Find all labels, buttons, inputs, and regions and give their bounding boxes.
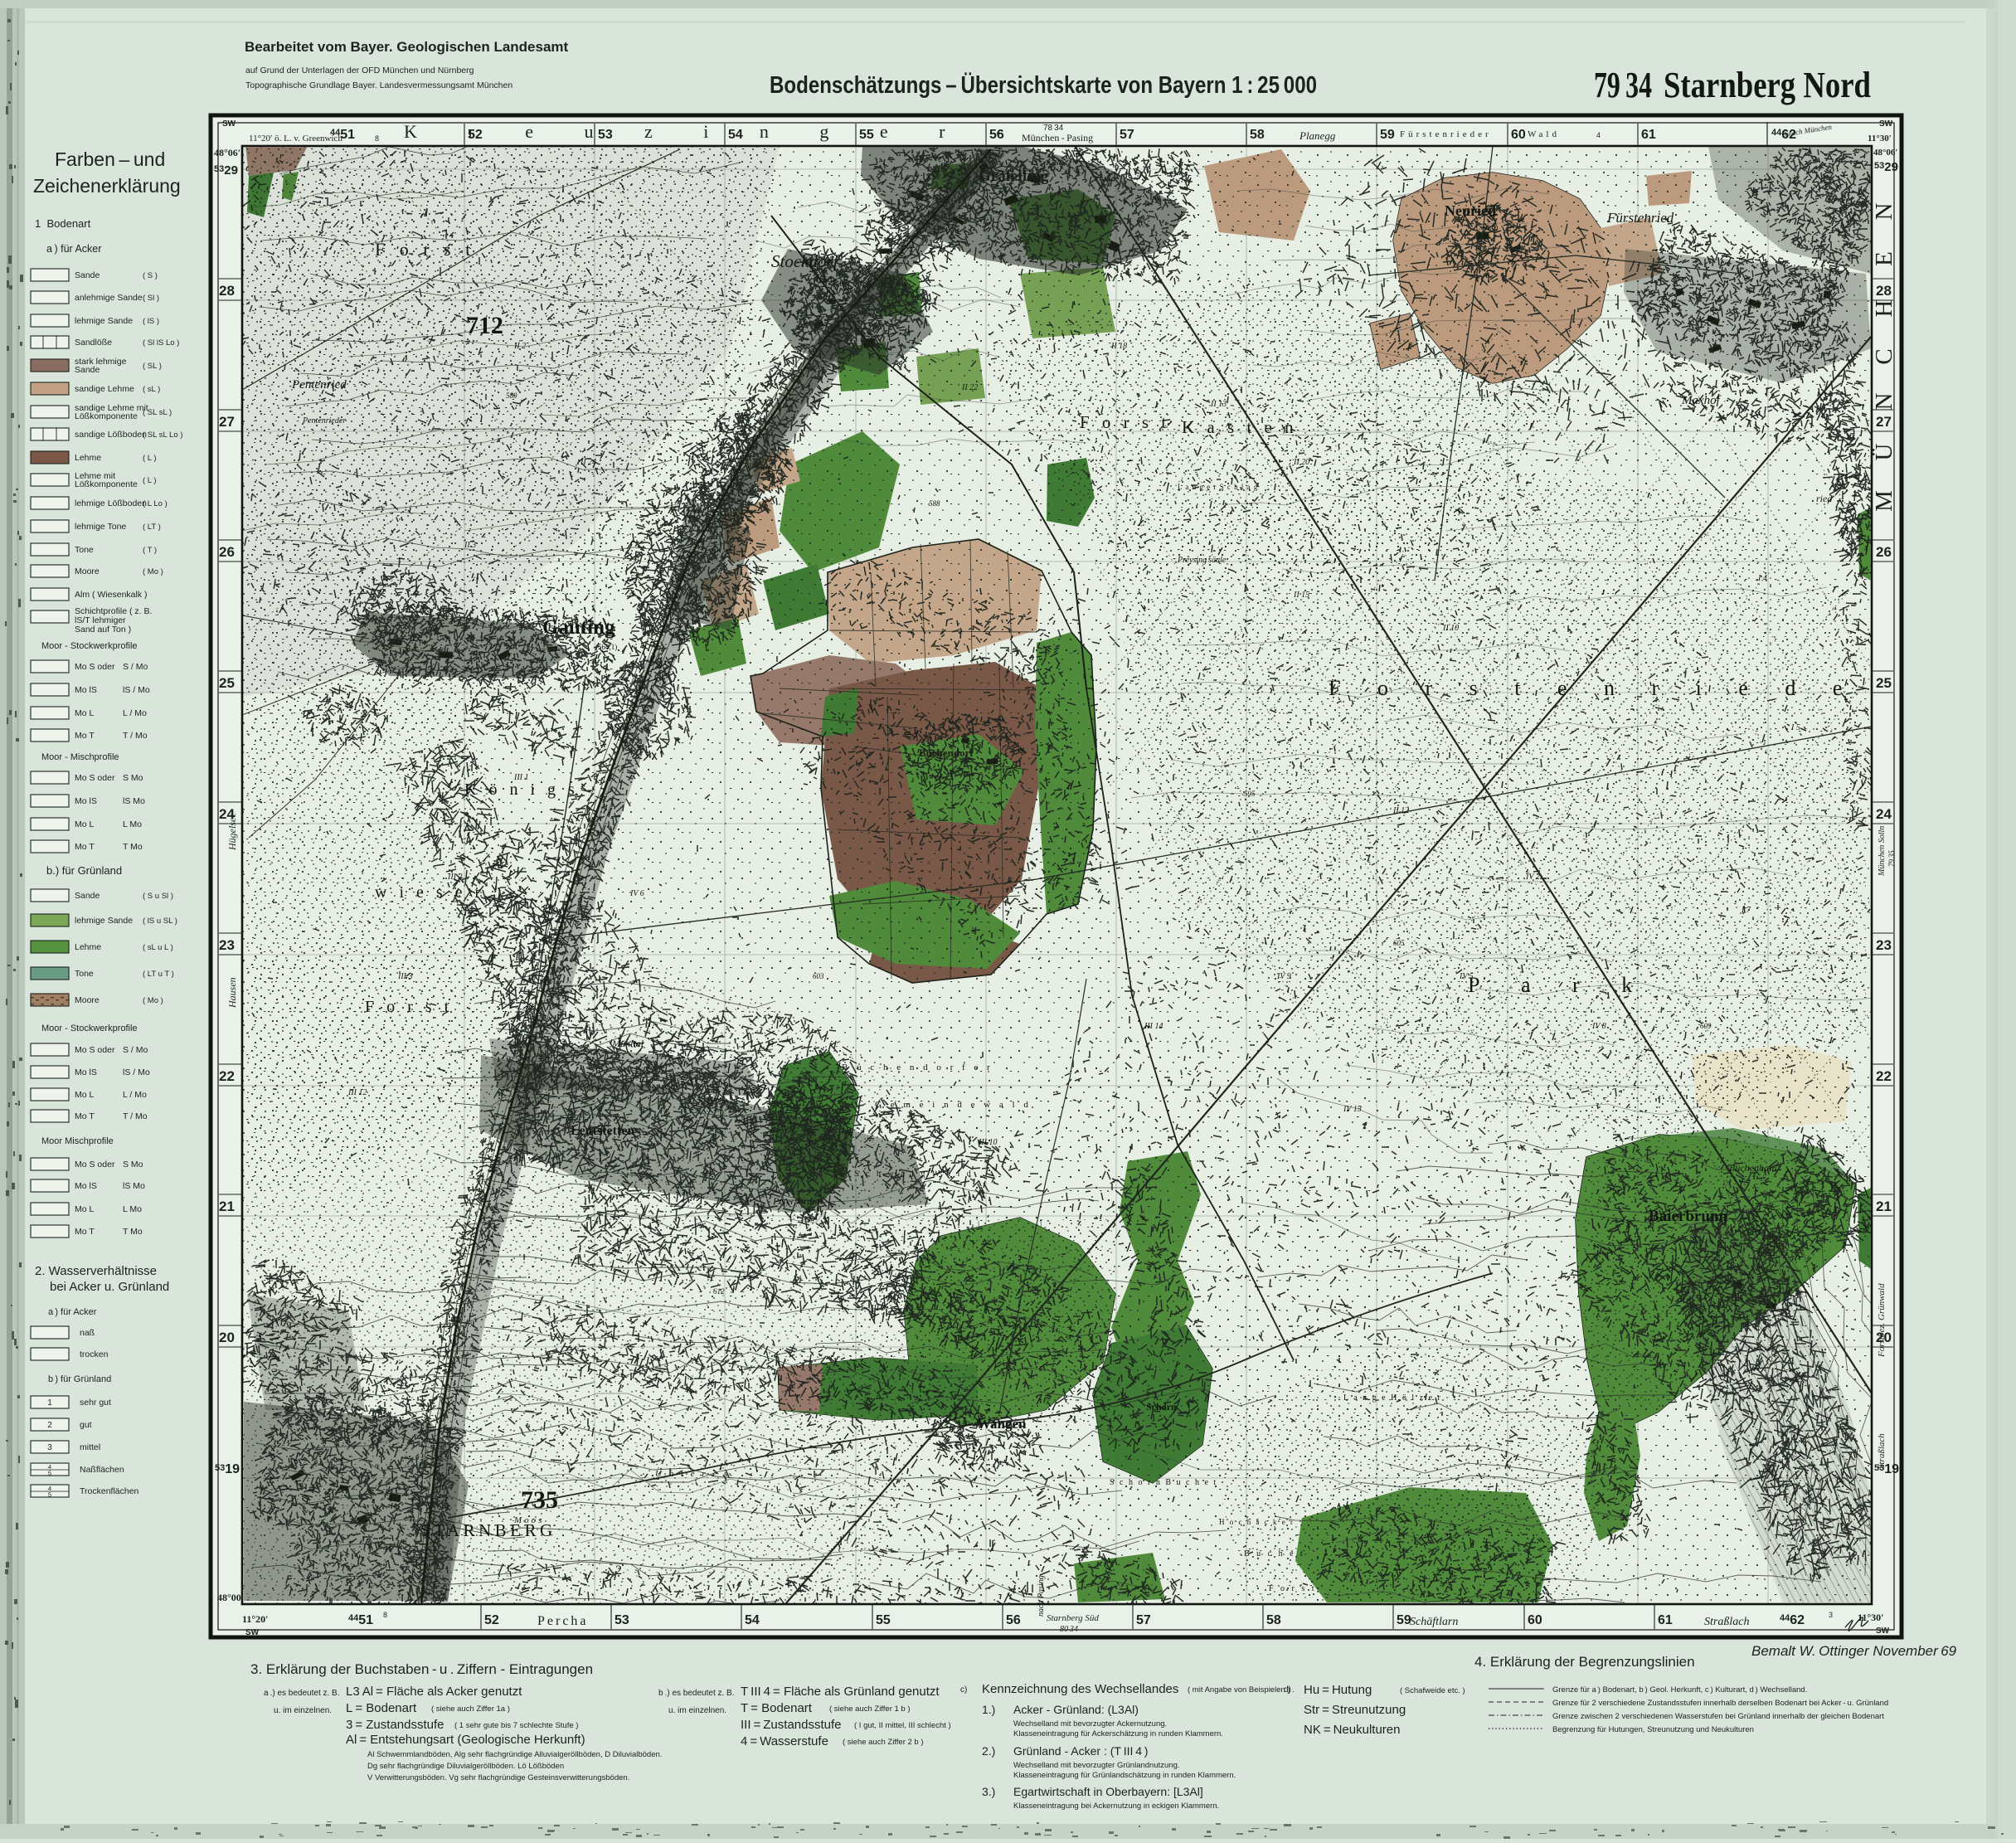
svg-text:( S ): ( S ) — [143, 271, 158, 280]
svg-text:Mo T: Mo T — [75, 1111, 95, 1121]
svg-text:58: 58 — [1266, 1613, 1281, 1627]
svg-text:11°20′ ö. L. v. Greenwich: 11°20′ ö. L. v. Greenwich — [249, 134, 342, 143]
svg-text:Straßlach: Straßlach — [1877, 1433, 1887, 1469]
svg-text:München Solln: München Solln — [1878, 826, 1887, 877]
svg-text:Moor - Stockwerkprofile: Moor - Stockwerkprofile — [41, 641, 138, 651]
svg-text:SW: SW — [1876, 1627, 1890, 1636]
svg-text:Alm ( Wiesenkalk ): Alm ( Wiesenkalk ) — [75, 590, 148, 600]
svg-text:Fürstenrieder: Fürstenrieder — [1400, 129, 1492, 139]
svg-text:Sande: Sande — [75, 891, 100, 901]
svg-text:S / Mo: S / Mo — [123, 662, 148, 672]
svg-text:( Schafweide etc. ): ( Schafweide etc. ) — [1400, 1686, 1465, 1695]
svg-text:Moor - Mischprofile: Moor - Mischprofile — [41, 752, 119, 762]
svg-text:27: 27 — [219, 414, 235, 430]
svg-text:( siehe auch Ziffer 1 b ): ( siehe auch Ziffer 1 b ) — [829, 1704, 911, 1714]
svg-text:25: 25 — [1876, 675, 1892, 691]
svg-text:Klasseneintragung für Ackers: Klasseneintragung für Ackerschätzung in … — [1013, 1729, 1223, 1738]
svg-text:a .) es bedeutet z. B.: a .) es bedeutet z. B. — [264, 1689, 340, 1698]
svg-text:57: 57 — [1136, 1613, 1151, 1627]
svg-text:T = Bodenart: T = Bodenart — [741, 1701, 813, 1715]
svg-text:11°30′: 11°30′ — [1868, 134, 1892, 143]
svg-text:Mo L: Mo L — [75, 1204, 95, 1214]
svg-text:5: 5 — [48, 1491, 51, 1499]
svg-text:Begrenzung für Hutungen, St: Begrenzung für Hutungen, Streunutzung un… — [1552, 1725, 1754, 1734]
svg-text:24: 24 — [1876, 806, 1892, 822]
svg-text:mittel: mittel — [80, 1442, 100, 1452]
svg-text:Klasseneintragung bei Ackern: Klasseneintragung bei Ackernutzung in ec… — [1013, 1802, 1219, 1811]
svg-text:Sand auf Ton ): Sand auf Ton ) — [75, 625, 131, 635]
svg-text:( Mo ): ( Mo ) — [143, 996, 163, 1005]
svg-text:Moore: Moore — [75, 995, 100, 1005]
svg-text:8: 8 — [375, 134, 379, 143]
svg-text:Mo S oder: Mo S oder — [75, 1045, 115, 1055]
svg-text:27: 27 — [1876, 414, 1892, 430]
svg-text:T Mo: T Mo — [123, 842, 143, 852]
svg-text:2. Wasserverhältnisse: 2. Wasserverhältnisse — [35, 1264, 157, 1278]
svg-text:21: 21 — [219, 1199, 235, 1214]
svg-text:E: E — [1871, 251, 1897, 266]
svg-text:u. im einzelnen.: u. im einzelnen. — [668, 1706, 726, 1715]
svg-text:( 1 sehr gute bis 7 schle: ( 1 sehr gute bis 7 schlechte Stufe ) — [454, 1721, 578, 1730]
svg-text:20: 20 — [219, 1330, 235, 1345]
svg-text:Mo T: Mo T — [75, 842, 95, 852]
svg-text:25: 25 — [219, 675, 235, 691]
svg-text:Dg sehr flachgründige Dilu: Dg sehr flachgründige Diluvialgeröllböde… — [367, 1762, 564, 1771]
svg-text:Klasseneintragung für Grünla: Klasseneintragung für Grünlandschätzung … — [1013, 1771, 1236, 1780]
svg-text:( sL ): ( sL ) — [143, 385, 160, 394]
svg-text:54: 54 — [745, 1613, 760, 1627]
svg-text:( T ): ( T ) — [143, 546, 157, 555]
svg-text:naß: naß — [80, 1328, 95, 1338]
svg-text:61: 61 — [1641, 128, 1656, 142]
svg-text:L Mo: L Mo — [123, 819, 142, 829]
svg-text:Str = Streunutzung: Str = Streunutzung — [1304, 1703, 1406, 1717]
svg-text:Grünland - Acker : (T III 4: Grünland - Acker : (T III 4 ) — [1013, 1744, 1148, 1758]
svg-text:( L ): ( L ) — [143, 454, 157, 463]
svg-text:Lehme: Lehme — [75, 942, 101, 952]
svg-text:Mo lS: Mo lS — [75, 796, 97, 806]
svg-text:gut: gut — [80, 1420, 92, 1430]
svg-text:3.): 3.) — [982, 1785, 995, 1798]
svg-text:Farben – und: Farben – und — [55, 148, 165, 170]
svg-text:Mo lS: Mo lS — [75, 1067, 97, 1077]
svg-text:Bodenschätzungs – Übersichtska: Bodenschätzungs – Übersichtskarte von Ba… — [770, 71, 1317, 99]
svg-text:Lößkomponente: Lößkomponente — [75, 479, 138, 489]
svg-text:( sL u L ): ( sL u L ) — [143, 943, 173, 952]
svg-text:a ) für Acker: a ) für Acker — [48, 1307, 97, 1317]
svg-text:4. Erklärung der Begrenzung: 4. Erklärung der Begrenzungslinien — [1474, 1654, 1695, 1670]
svg-text:lS / Mo: lS / Mo — [123, 1067, 150, 1077]
svg-text:58: 58 — [1250, 128, 1265, 142]
svg-text:Mo lS: Mo lS — [75, 685, 97, 695]
svg-text:22: 22 — [1876, 1068, 1892, 1084]
svg-text:Lößkomponente: Lößkomponente — [75, 411, 138, 421]
svg-text:lS Mo: lS Mo — [123, 1181, 145, 1191]
svg-text:Bemalt W. Ottinger November: Bemalt W. Ottinger November 69 — [1751, 1643, 1957, 1659]
svg-text:22: 22 — [219, 1068, 235, 1084]
svg-text:Planegg: Planegg — [1299, 129, 1336, 142]
svg-text:SW: SW — [1879, 119, 1893, 129]
svg-text:( Sl ): ( Sl ) — [143, 294, 159, 303]
svg-text:trocken: trocken — [80, 1349, 109, 1359]
svg-text:( SL sL ): ( SL sL ) — [143, 408, 172, 417]
svg-text:( siehe auch Ziffer 2 b ): ( siehe auch Ziffer 2 b ) — [843, 1738, 924, 1747]
svg-text:Hausen: Hausen — [226, 977, 238, 1009]
svg-text:80 34: 80 34 — [1060, 1625, 1078, 1634]
svg-text:c): c) — [960, 1685, 967, 1695]
svg-text:T / Mo: T / Mo — [123, 1111, 148, 1121]
svg-text:bei Acker u. Grünland: bei Acker u. Grünland — [50, 1280, 169, 1294]
svg-text:Tone: Tone — [75, 969, 94, 979]
svg-text:Mo S oder: Mo S oder — [75, 662, 115, 672]
svg-text:Mo L: Mo L — [75, 708, 95, 718]
svg-text:T Mo: T Mo — [123, 1227, 143, 1237]
svg-text:( Mo ): ( Mo ) — [143, 567, 163, 576]
svg-text:N: N — [1871, 202, 1897, 220]
svg-text:S Mo: S Mo — [123, 773, 143, 783]
svg-text:Schäftlarn: Schäftlarn — [1410, 1616, 1458, 1628]
svg-text:79 34: 79 34 — [1594, 65, 1652, 105]
svg-text:Bearbeitet vom Bayer. Geologis: Bearbeitet vom Bayer. Geologischen Lande… — [245, 39, 569, 55]
svg-text:Wechselland mit bevorzugter: Wechselland mit bevorzugter Grünlandnutz… — [1013, 1761, 1180, 1770]
svg-text:lS / Mo: lS / Mo — [123, 685, 150, 695]
svg-text:Trockenflächen: Trockenflächen — [80, 1486, 139, 1496]
svg-text:28: 28 — [1876, 283, 1892, 299]
svg-text:M: M — [1871, 490, 1897, 512]
svg-text:Lehme: Lehme — [75, 453, 101, 463]
svg-text:60: 60 — [1528, 1613, 1542, 1627]
svg-text:Sandlöße: Sandlöße — [75, 338, 112, 348]
svg-text:11°20′: 11°20′ — [242, 1613, 269, 1625]
svg-text:Hu = Hutung: Hu = Hutung — [1304, 1683, 1372, 1697]
svg-text:( L ): ( L ) — [143, 476, 157, 485]
svg-text:Mo L: Mo L — [75, 819, 95, 829]
svg-text:München - Pasing: München - Pasing — [1022, 132, 1093, 143]
svg-text:48°06′: 48°06′ — [1873, 148, 1898, 158]
svg-text:S Mo: S Mo — [123, 1160, 143, 1170]
svg-text:L Mo: L Mo — [123, 1204, 142, 1214]
svg-text:1: 1 — [47, 1398, 52, 1408]
svg-text:( SL ): ( SL ) — [143, 362, 162, 371]
svg-text:( lS u SL ): ( lS u SL ) — [143, 917, 177, 926]
svg-text:Moor - Stockwerkprofile: Moor - Stockwerkprofile — [41, 1024, 138, 1033]
svg-text:V Verwitterungsböden. Vg: V Verwitterungsböden. Vg sehr flachgründ… — [367, 1773, 629, 1782]
svg-text:Mo T: Mo T — [75, 731, 95, 741]
svg-text:Mo S oder: Mo S oder — [75, 1160, 115, 1170]
svg-text:Sande: Sande — [75, 270, 100, 280]
svg-text:23: 23 — [1876, 937, 1892, 953]
svg-text:b ) für Grünland: b ) für Grünland — [48, 1374, 111, 1384]
svg-text:26: 26 — [1876, 544, 1892, 560]
svg-text:3: 3 — [47, 1443, 52, 1452]
svg-text:N: N — [1871, 392, 1897, 410]
svg-text:60: 60 — [1511, 128, 1526, 142]
svg-text:anlehmige Sande: anlehmige Sande — [75, 293, 143, 303]
svg-text:Ü: Ü — [1871, 443, 1897, 460]
svg-text:T / Mo: T / Mo — [123, 731, 148, 741]
svg-text:26: 26 — [219, 544, 235, 560]
svg-text:Wechselland mit bevorzugter: Wechselland mit bevorzugter Ackernutzung… — [1013, 1719, 1167, 1729]
svg-text:auf Grund der Unterlagen der O: auf Grund der Unterlagen der OFD München… — [245, 66, 474, 75]
svg-text:C: C — [1871, 348, 1897, 364]
svg-text:Grenze für 2 verschiedene: Grenze für 2 verschiedene Zustandsstufen… — [1552, 1699, 1888, 1708]
svg-text:b .) es bedeutet z. B.: b .) es bedeutet z. B. — [658, 1689, 735, 1698]
svg-text:( L Lo ): ( L Lo ) — [143, 499, 168, 508]
svg-text:48°00′: 48°00′ — [217, 1592, 244, 1603]
svg-text:H: H — [1871, 299, 1897, 317]
svg-text:1.): 1.) — [982, 1703, 995, 1716]
svg-text:28: 28 — [219, 283, 235, 299]
svg-text:III = Zustandsstufe: III = Zustandsstufe — [741, 1718, 842, 1732]
svg-text:L = Bodenart: L = Bodenart — [346, 1701, 417, 1715]
svg-text:L / Mo: L / Mo — [123, 1090, 147, 1100]
svg-text:sandige Lehme: sandige Lehme — [75, 384, 134, 394]
svg-text:Starnberg Süd: Starnberg Süd — [1047, 1613, 1099, 1623]
svg-text:L3 Al = Fläche als Acker gen: L3 Al = Fläche als Acker genutzt — [346, 1685, 522, 1699]
svg-text:5: 5 — [48, 1470, 51, 1477]
svg-text:Moore: Moore — [75, 567, 100, 576]
svg-text:Naßflächen: Naßflächen — [80, 1465, 124, 1475]
svg-text:( I gut, II mittel, III s: ( I gut, II mittel, III schlecht ) — [854, 1721, 951, 1730]
svg-text:Mo T: Mo T — [75, 1227, 95, 1237]
svg-text:Percha: Percha — [537, 1614, 589, 1628]
svg-text:( LT u T ): ( LT u T ) — [143, 970, 174, 979]
svg-text:23: 23 — [219, 937, 235, 953]
svg-text:Grenze zwischen 2 verschied: Grenze zwischen 2 verschiedenen Wasserst… — [1552, 1712, 1884, 1721]
svg-text:4 = Wasserstufe: 4 = Wasserstufe — [741, 1734, 828, 1748]
svg-text:Straßlach: Straßlach — [1704, 1616, 1749, 1628]
svg-text:d): d) — [1284, 1685, 1291, 1695]
svg-text:( lS ): ( lS ) — [143, 317, 159, 326]
svg-text:Topographische Grundlage Bayer: Topographische Grundlage Bayer. Landesve… — [245, 80, 513, 90]
svg-text:Al Schwemmlandböden, Alg se: Al Schwemmlandböden, Alg sehr flachgründ… — [367, 1750, 662, 1759]
svg-text:( SL sL Lo ): ( SL sL Lo ) — [143, 430, 182, 440]
svg-text:( LT ): ( LT ) — [143, 523, 161, 532]
svg-text:Moor Mischprofile: Moor Mischprofile — [41, 1136, 114, 1146]
svg-text:lehmige Sande: lehmige Sande — [75, 916, 133, 926]
svg-text:Tone: Tone — [75, 545, 94, 555]
svg-text:Mo S oder: Mo S oder — [75, 773, 115, 783]
svg-text:Al = Entstehungsart (Geologis: Al = Entstehungsart (Geologische Herkunf… — [346, 1733, 585, 1747]
svg-text:L / Mo: L / Mo — [123, 708, 147, 718]
svg-text:3 = Zustandsstufe: 3 = Zustandsstufe — [346, 1718, 444, 1732]
svg-text:( mit Angabe von Beispielen: ( mit Angabe von Beispielen ) . — [1188, 1685, 1295, 1695]
svg-text:( Sl lS Lo ): ( Sl lS Lo ) — [143, 338, 179, 348]
svg-text:sandige Lößboden: sandige Lößboden — [75, 430, 147, 440]
svg-text:SW: SW — [222, 119, 236, 129]
svg-text:T III 4 = Fläche als Grünlan: T III 4 = Fläche als Grünland genutzt — [741, 1685, 940, 1699]
svg-text:lehmige Tone: lehmige Tone — [75, 522, 126, 532]
svg-text:( S u Sl ): ( S u Sl ) — [143, 892, 173, 901]
svg-text:Forstbez. Grünwald: Forstbez. Grünwald — [1877, 1283, 1887, 1358]
svg-text:1 Bodenart: 1 Bodenart — [35, 217, 91, 230]
svg-text:Zeichenerklärung: Zeichenerklärung — [33, 175, 181, 197]
svg-text:56: 56 — [1006, 1613, 1021, 1627]
svg-text:SW: SW — [245, 1628, 260, 1637]
svg-text:48°06′: 48°06′ — [214, 147, 240, 158]
svg-text:S / Mo: S / Mo — [123, 1045, 148, 1055]
svg-text:lS Mo: lS Mo — [123, 796, 145, 806]
svg-text:4: 4 — [1596, 131, 1601, 139]
svg-text:2.): 2.) — [982, 1744, 995, 1758]
svg-text:Hügelsee: Hügelsee — [226, 813, 238, 851]
svg-text:3. Erklärung der Buchstaben -: 3. Erklärung der Buchstaben - u . Ziffer… — [250, 1661, 593, 1677]
svg-text:2: 2 — [47, 1421, 52, 1430]
svg-text:Mo lS: Mo lS — [75, 1181, 97, 1191]
svg-text:59: 59 — [1380, 128, 1395, 142]
svg-text:K r e u z i n g e r -: K r e u z i n g e r - — [404, 121, 1025, 142]
svg-text:Grenze für a ) Bodenart,: Grenze für a ) Bodenart, b ) Geol. Herku… — [1552, 1685, 1807, 1695]
svg-text:sehr gut: sehr gut — [80, 1398, 111, 1408]
svg-text:57: 57 — [1120, 128, 1134, 142]
svg-text:8: 8 — [383, 1611, 387, 1619]
svg-text:21: 21 — [1876, 1199, 1892, 1214]
svg-text:NK = Neukulturen: NK = Neukulturen — [1304, 1723, 1400, 1737]
svg-text:b.) für Grünland: b.) für Grünland — [46, 864, 122, 877]
svg-text:lehmige Sande: lehmige Sande — [75, 316, 133, 326]
svg-text:( siehe auch Ziffer 1a ): ( siehe auch Ziffer 1a ) — [431, 1704, 510, 1714]
svg-text:Egartwirtschaft in Oberbayer: Egartwirtschaft in Oberbayern: [L3Al] — [1013, 1785, 1203, 1798]
svg-text:Sande: Sande — [75, 365, 100, 375]
svg-text:55: 55 — [876, 1613, 891, 1627]
svg-text:3: 3 — [1829, 1611, 1833, 1619]
svg-text:lehmige Lößboden: lehmige Lößboden — [75, 498, 147, 508]
svg-text:52: 52 — [484, 1613, 499, 1627]
svg-text:Starnberg Nord: Starnberg Nord — [1664, 65, 1871, 105]
svg-text:53: 53 — [615, 1613, 629, 1627]
svg-text:u. im einzelnen.: u. im einzelnen. — [274, 1706, 332, 1715]
svg-text:61: 61 — [1658, 1613, 1673, 1627]
svg-text:Mo L: Mo L — [75, 1090, 95, 1100]
svg-text:Kennzeichnung des Wechsellan: Kennzeichnung des Wechsellandes — [982, 1682, 1178, 1696]
svg-text:79 35: 79 35 — [1887, 850, 1896, 867]
svg-text:Acker - Grünland: (L3Al): Acker - Grünland: (L3Al) — [1013, 1703, 1139, 1716]
svg-text:Wald: Wald — [1528, 129, 1560, 139]
svg-text:a ) für Acker: a ) für Acker — [46, 243, 101, 255]
